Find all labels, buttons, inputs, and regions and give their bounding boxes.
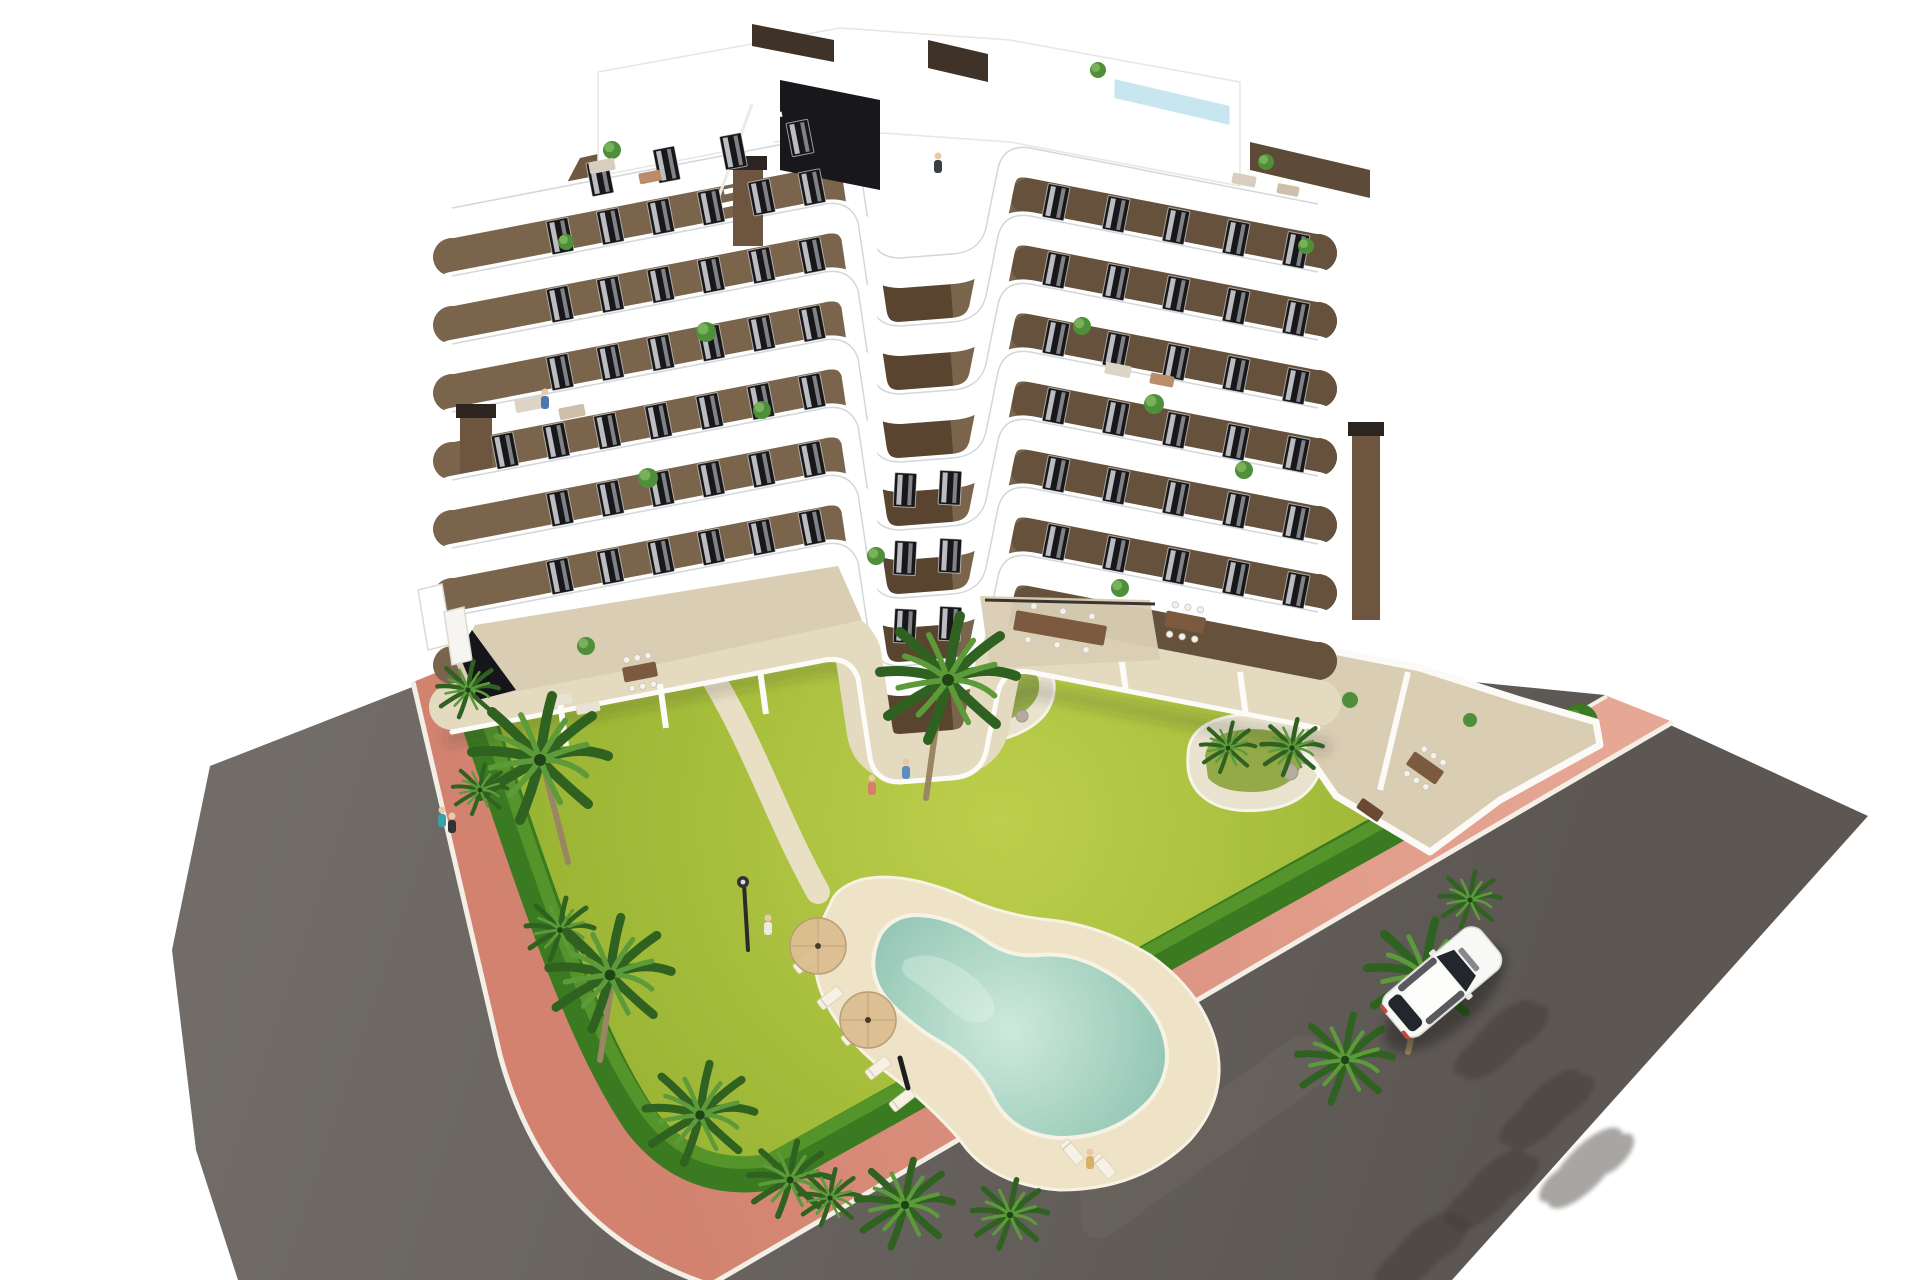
balcony-plant-highlight xyxy=(1236,462,1246,472)
person xyxy=(934,153,942,174)
balcony-plant-highlight xyxy=(1074,318,1084,328)
person-body xyxy=(541,396,549,409)
person xyxy=(541,389,549,410)
chair xyxy=(1179,634,1185,640)
terrace-plant xyxy=(1463,713,1477,727)
chair xyxy=(640,683,646,689)
sun-umbrella xyxy=(840,992,896,1048)
person-head xyxy=(1087,1149,1094,1156)
chair xyxy=(1413,777,1419,783)
person xyxy=(438,807,446,828)
chair xyxy=(1423,784,1429,790)
chimney-cap xyxy=(1348,422,1384,436)
chair xyxy=(1192,636,1198,642)
chair xyxy=(1430,753,1436,759)
balcony-plant-highlight xyxy=(640,470,651,481)
chair xyxy=(623,657,629,663)
person-body xyxy=(448,820,456,833)
chair xyxy=(1421,746,1427,752)
window xyxy=(938,538,962,573)
person-head xyxy=(935,153,942,160)
person-head xyxy=(869,775,876,782)
chair xyxy=(1172,602,1178,608)
chair xyxy=(1083,647,1089,653)
person-head xyxy=(439,807,446,814)
chair xyxy=(1197,607,1203,613)
window xyxy=(938,470,962,505)
balcony-plant-highlight xyxy=(1112,580,1122,590)
person-head xyxy=(542,389,549,396)
chair xyxy=(645,652,651,658)
balcony-plant-highlight xyxy=(754,402,764,412)
person-body xyxy=(764,922,772,935)
balcony-plant-highlight xyxy=(1146,396,1157,407)
umbrella-pole xyxy=(865,1017,871,1023)
person xyxy=(868,775,876,796)
chair xyxy=(1054,642,1060,648)
chair xyxy=(1089,613,1095,619)
balcony-plant-highlight xyxy=(578,638,588,648)
person xyxy=(902,759,910,780)
person-head xyxy=(903,759,910,766)
balcony-plant-highlight xyxy=(1259,155,1268,164)
balcony-plant-highlight xyxy=(559,235,568,244)
person-body xyxy=(438,814,446,827)
lamp-glow xyxy=(741,880,746,885)
balcony-plant-highlight xyxy=(868,548,878,558)
chair xyxy=(1025,636,1031,642)
sun-umbrella xyxy=(790,918,846,974)
terrace-plant xyxy=(1342,692,1358,708)
person-body xyxy=(934,160,942,173)
chair xyxy=(629,685,635,691)
chair xyxy=(650,681,656,687)
chair xyxy=(1185,604,1191,610)
person-head xyxy=(765,915,772,922)
chimney xyxy=(1352,430,1380,620)
chair xyxy=(1166,631,1172,637)
render-canvas xyxy=(0,0,1920,1280)
chair xyxy=(1031,603,1037,609)
person-head xyxy=(449,813,456,820)
chair xyxy=(1404,770,1410,776)
window xyxy=(893,540,917,575)
chair xyxy=(1440,759,1446,765)
person xyxy=(764,915,772,936)
rock xyxy=(1016,710,1028,722)
window xyxy=(893,472,917,507)
person-body xyxy=(868,782,876,795)
person xyxy=(448,813,456,834)
balcony-plant-highlight xyxy=(1299,239,1308,248)
chair xyxy=(634,655,640,661)
chair xyxy=(1060,608,1066,614)
architectural-rendering xyxy=(0,0,1920,1280)
person-body xyxy=(1086,1156,1094,1169)
balcony-plant-highlight xyxy=(1091,63,1100,72)
umbrella-pole xyxy=(815,943,821,949)
balcony-plant-highlight xyxy=(604,142,614,152)
person-body xyxy=(902,766,910,779)
chimney-cap xyxy=(456,404,496,418)
balcony-plant-highlight xyxy=(698,324,709,335)
person xyxy=(1086,1149,1094,1170)
